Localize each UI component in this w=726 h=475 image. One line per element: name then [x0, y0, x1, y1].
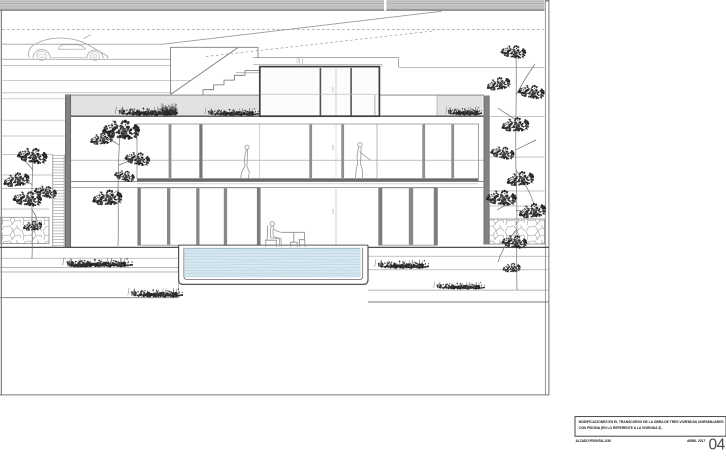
svg-text:04: 04 [709, 436, 726, 453]
svg-text:1/50: 1/50 [605, 439, 612, 443]
svg-text:2.50: 2.50 [331, 144, 335, 150]
svg-text:ALZADO FRONTAL: ALZADO FRONTAL [576, 439, 605, 443]
svg-text:4.15: 4.15 [296, 57, 300, 63]
svg-text:CON PISCINA (EN LO REFERENTE A: CON PISCINA (EN LO REFERENTE A LA VIVIEN… [579, 426, 663, 430]
svg-text:ABRIL 2017: ABRIL 2017 [687, 439, 705, 443]
svg-text:2.87: 2.87 [331, 86, 335, 92]
svg-text:MODIFICACIONES EN EL TRANSCURS: MODIFICACIONES EN EL TRANSCURSO DE LA OB… [579, 420, 725, 424]
svg-text:2.50: 2.50 [331, 208, 335, 214]
